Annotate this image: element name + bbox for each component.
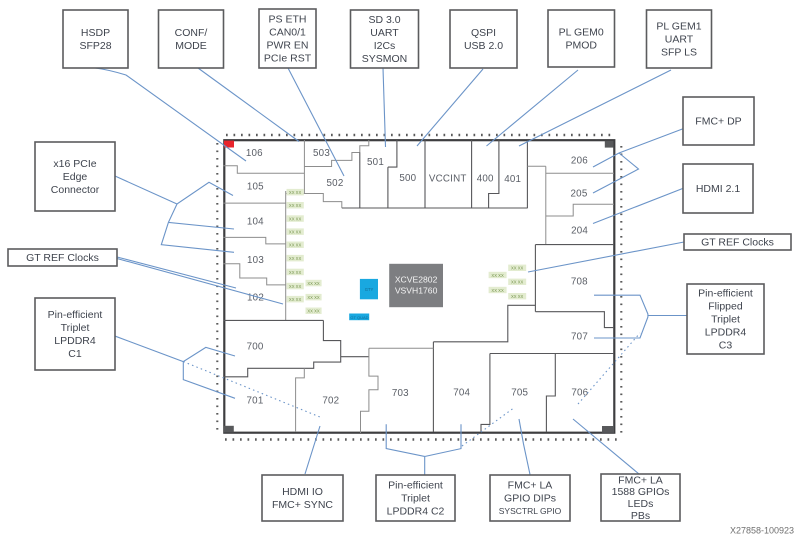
svg-text:XX XX: XX XX	[289, 243, 302, 248]
svg-text:LPDDR4: LPDDR4	[54, 335, 96, 347]
svg-text:502: 502	[327, 178, 344, 189]
svg-text:SD 3.0: SD 3.0	[368, 14, 400, 26]
svg-text:VSVH1760: VSVH1760	[395, 285, 438, 295]
svg-text:706: 706	[571, 388, 588, 399]
svg-text:GTY: GTY	[365, 287, 374, 292]
svg-text:FMC+ LA: FMC+ LA	[508, 480, 553, 492]
svg-text:PMOD: PMOD	[565, 40, 597, 52]
svg-text:SFP LS: SFP LS	[661, 47, 697, 59]
svg-text:PCIe RST: PCIe RST	[264, 53, 312, 65]
svg-text:GT QUAD: GT QUAD	[350, 315, 368, 320]
svg-text:GT REF Clocks: GT REF Clocks	[26, 252, 99, 264]
svg-text:106: 106	[246, 148, 263, 159]
svg-text:GT REF Clocks: GT REF Clocks	[701, 237, 774, 249]
svg-text:501: 501	[367, 157, 384, 168]
svg-text:GPIO DIPs: GPIO DIPs	[504, 493, 556, 505]
svg-text:PL GEM0: PL GEM0	[559, 27, 604, 39]
svg-text:XX XX: XX XX	[511, 294, 524, 299]
svg-text:XX XX: XX XX	[491, 273, 504, 278]
svg-text:FMC+ DP: FMC+ DP	[695, 116, 741, 128]
svg-text:XX XX: XX XX	[289, 284, 302, 289]
svg-text:SYSMON: SYSMON	[362, 53, 408, 65]
svg-text:CAN0/1: CAN0/1	[269, 27, 306, 39]
svg-text:CONF/: CONF/	[175, 27, 208, 39]
svg-text:206: 206	[571, 156, 588, 167]
svg-text:QSPI: QSPI	[471, 27, 496, 39]
svg-text:Flipped: Flipped	[708, 301, 743, 313]
svg-text:701: 701	[247, 396, 264, 407]
svg-text:Triplet: Triplet	[711, 314, 740, 326]
svg-text:XX XX: XX XX	[289, 216, 302, 221]
svg-text:FMC+ LA: FMC+ LA	[618, 475, 663, 487]
svg-text:204: 204	[571, 225, 588, 236]
svg-text:SYSCTRL GPIO: SYSCTRL GPIO	[499, 506, 562, 516]
svg-text:LPDDR4: LPDDR4	[705, 327, 747, 339]
svg-text:Pin-efficient: Pin-efficient	[388, 480, 443, 492]
svg-text:VCCINT: VCCINT	[429, 173, 467, 184]
svg-text:702: 702	[322, 396, 339, 407]
svg-text:707: 707	[571, 332, 588, 343]
svg-text:1588 GPIOs: 1588 GPIOs	[612, 486, 670, 498]
svg-text:x16 PCIe: x16 PCIe	[53, 158, 96, 170]
svg-text:XX XX: XX XX	[289, 230, 302, 235]
svg-text:LEDs: LEDs	[628, 498, 654, 510]
svg-text:Pin-efficient: Pin-efficient	[48, 309, 103, 321]
svg-text:USB 2.0: USB 2.0	[464, 40, 503, 52]
svg-text:UART: UART	[665, 34, 694, 46]
svg-text:I2Cs: I2Cs	[374, 40, 396, 52]
svg-text:PS ETH: PS ETH	[269, 14, 307, 26]
svg-text:XX XX: XX XX	[307, 295, 320, 300]
svg-text:C1: C1	[68, 348, 82, 360]
svg-text:704: 704	[453, 388, 470, 399]
svg-text:705: 705	[511, 388, 528, 399]
svg-text:C3: C3	[719, 340, 733, 352]
svg-text:XX XX: XX XX	[491, 288, 504, 293]
svg-text:XX XX: XX XX	[511, 280, 524, 285]
svg-text:SFP28: SFP28	[79, 40, 111, 52]
svg-text:XX XX: XX XX	[289, 297, 302, 302]
svg-text:MODE: MODE	[175, 40, 207, 52]
svg-text:XX XX: XX XX	[307, 281, 320, 286]
svg-text:703: 703	[392, 388, 409, 399]
svg-text:708: 708	[571, 277, 588, 288]
svg-text:XCVE2802: XCVE2802	[395, 274, 438, 284]
svg-text:Triplet: Triplet	[401, 493, 430, 505]
svg-text:XX XX: XX XX	[289, 256, 302, 261]
svg-text:Edge: Edge	[63, 171, 88, 183]
svg-text:Triplet: Triplet	[61, 322, 90, 334]
svg-text:104: 104	[247, 217, 264, 228]
svg-text:Connector: Connector	[51, 184, 100, 196]
svg-text:HDMI 2.1: HDMI 2.1	[696, 183, 741, 195]
svg-text:Pin-efficient: Pin-efficient	[698, 288, 753, 300]
svg-text:PWR EN: PWR EN	[267, 40, 309, 52]
svg-text:LPDDR4 C2: LPDDR4 C2	[387, 506, 445, 518]
svg-text:401: 401	[504, 174, 521, 185]
svg-text:PBs: PBs	[631, 510, 650, 522]
svg-text:XX XX: XX XX	[307, 309, 320, 314]
svg-text:205: 205	[571, 188, 588, 199]
svg-text:X27858-100923: X27858-100923	[730, 526, 794, 536]
svg-text:HDMI IO: HDMI IO	[282, 486, 323, 498]
svg-text:500: 500	[399, 173, 416, 184]
svg-text:400: 400	[477, 174, 494, 185]
svg-text:HSDP: HSDP	[81, 27, 110, 39]
svg-text:105: 105	[247, 181, 264, 192]
svg-text:503: 503	[313, 148, 330, 159]
svg-text:103: 103	[247, 255, 264, 266]
svg-text:UART: UART	[370, 27, 399, 39]
svg-text:XX XX: XX XX	[289, 190, 302, 195]
svg-text:PL GEM1: PL GEM1	[656, 21, 701, 33]
svg-text:XX XX: XX XX	[289, 270, 302, 275]
svg-text:700: 700	[247, 342, 264, 353]
svg-text:FMC+ SYNC: FMC+ SYNC	[272, 499, 333, 511]
svg-text:XX XX: XX XX	[511, 266, 524, 271]
svg-text:XX XX: XX XX	[289, 203, 302, 208]
